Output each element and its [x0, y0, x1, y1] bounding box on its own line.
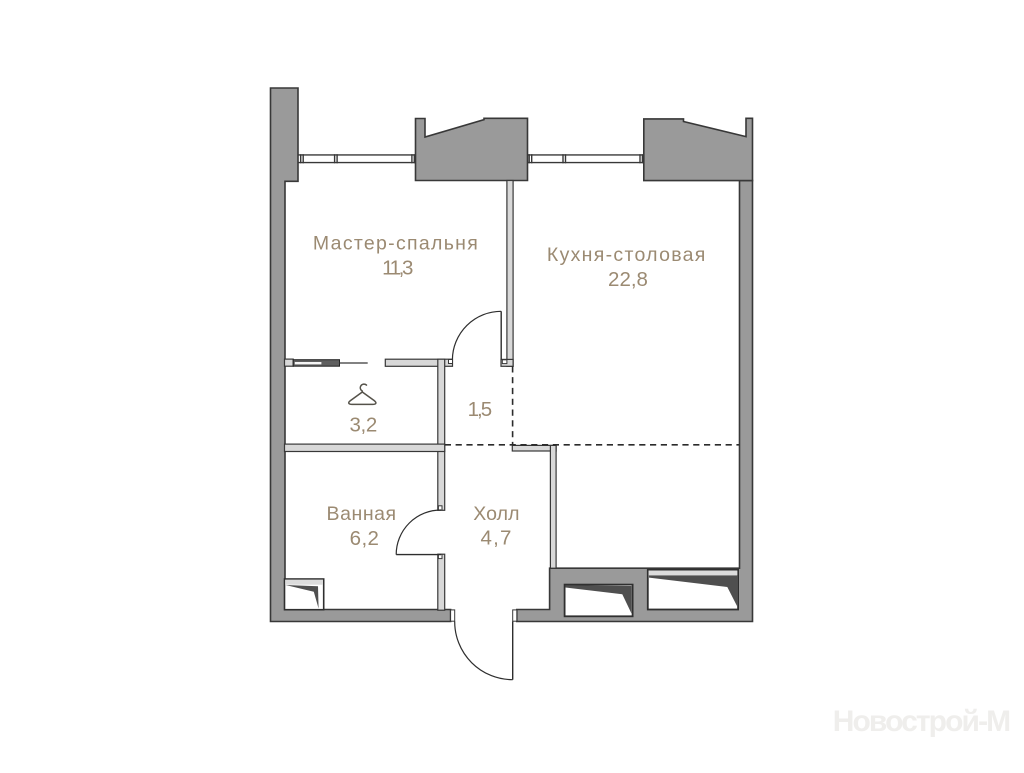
svg-text:6,2: 6,2	[350, 527, 380, 550]
svg-text:22,8: 22,8	[608, 268, 648, 291]
svg-text:1,5: 1,5	[468, 398, 492, 421]
svg-text:Ванная: Ванная	[327, 503, 397, 525]
svg-text:Мастер-спальня: Мастер-спальня	[313, 232, 479, 254]
svg-text:4,7: 4,7	[481, 526, 513, 549]
svg-text:Кухня-столовая: Кухня-столовая	[547, 244, 707, 266]
svg-text:3,2: 3,2	[350, 414, 377, 437]
svg-text:Холл: Холл	[473, 503, 519, 525]
svg-text:Новострой-М: Новострой-М	[833, 705, 1010, 738]
svg-text:11,3: 11,3	[382, 256, 413, 279]
